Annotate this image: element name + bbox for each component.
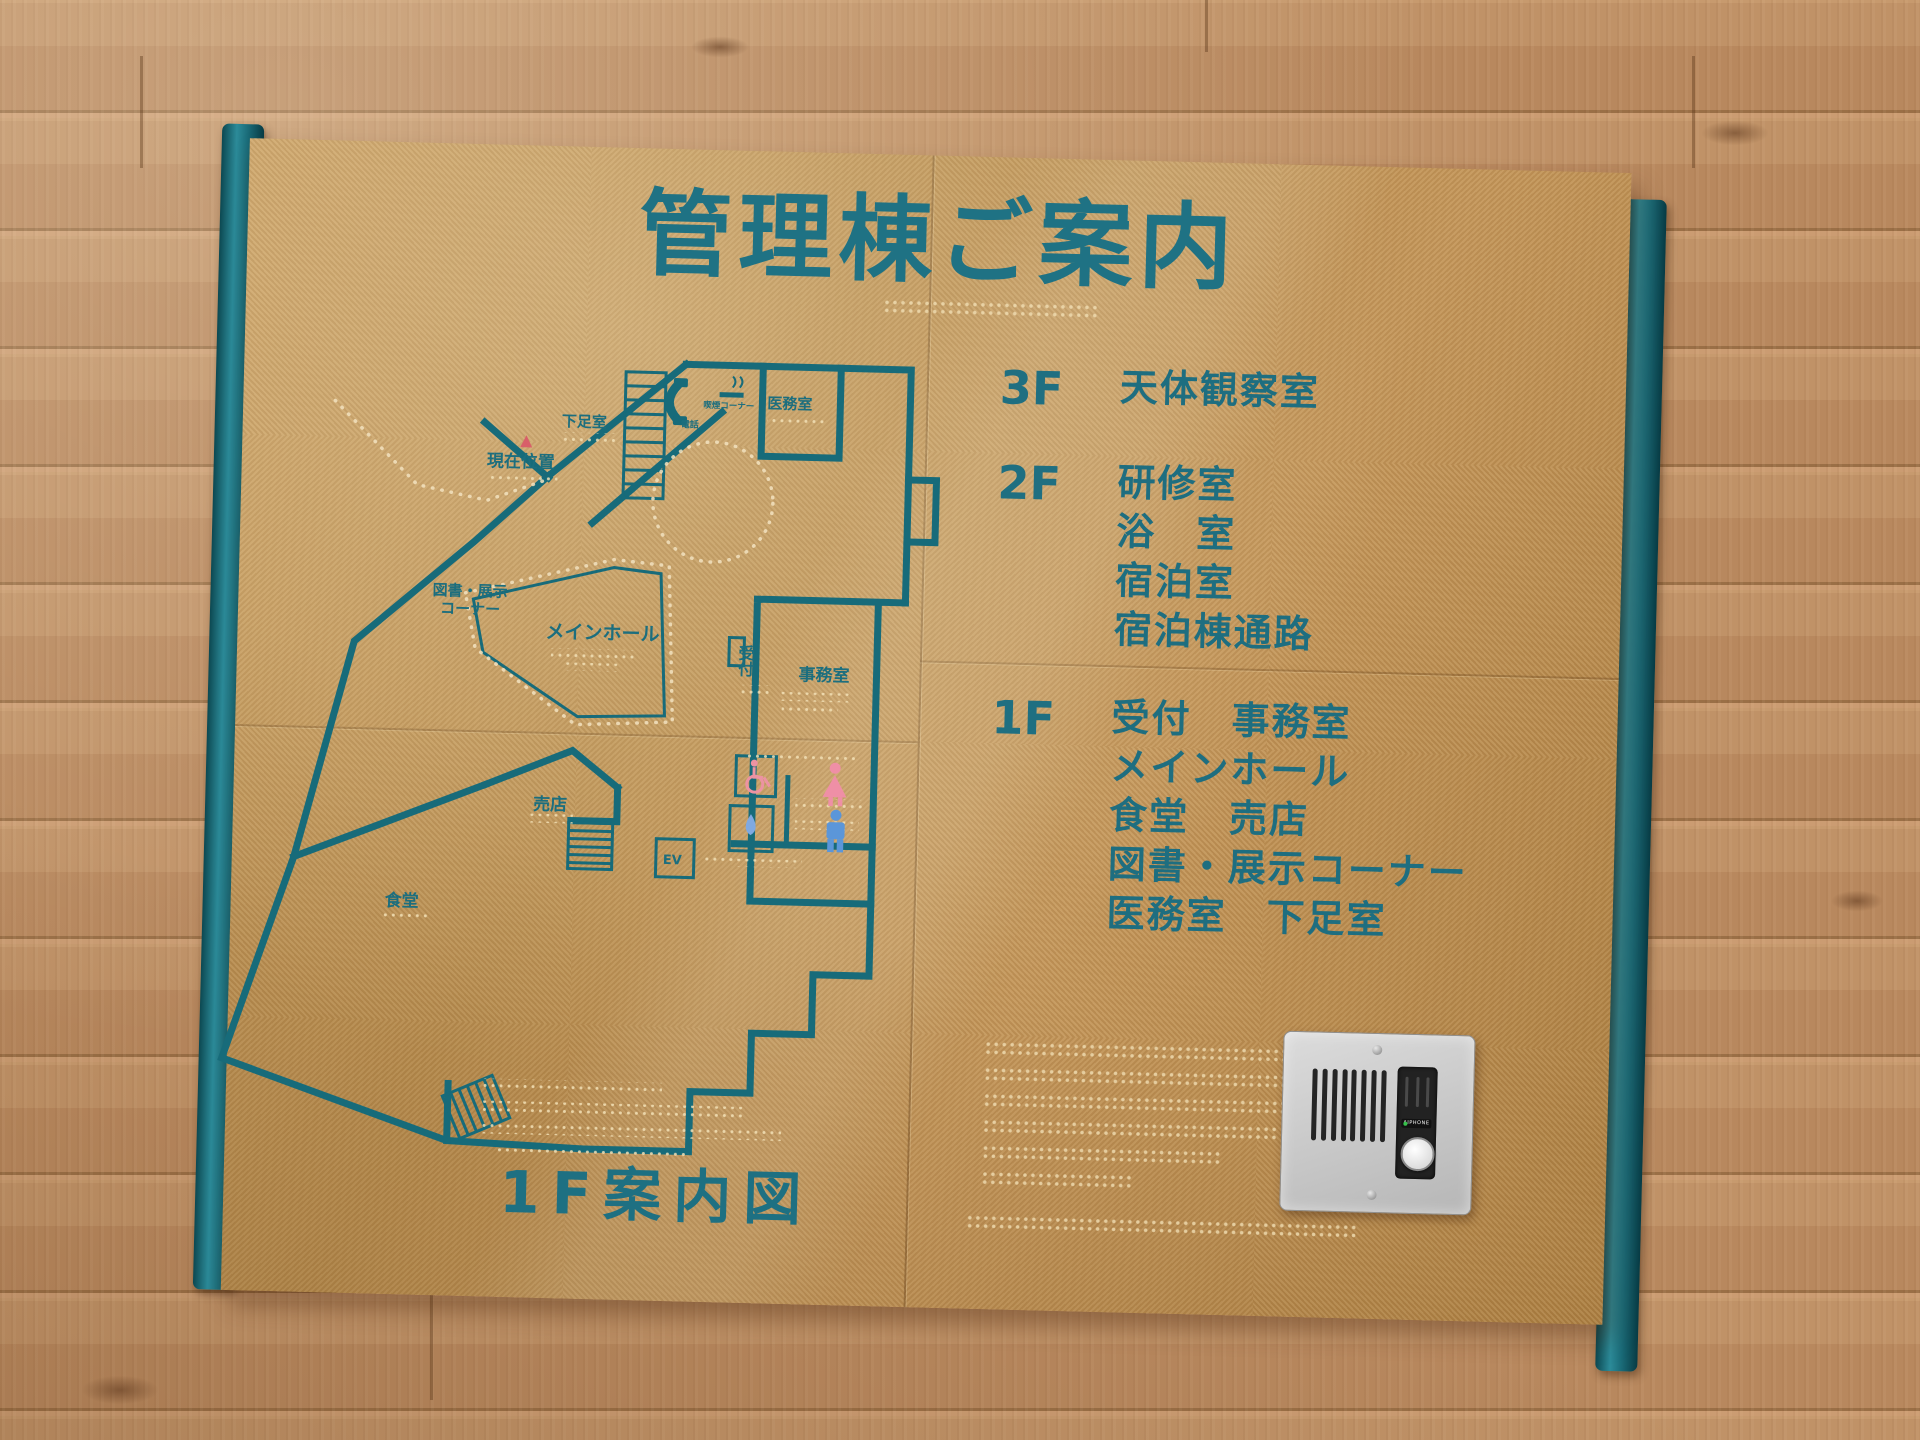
braille-paragraph [250, 138, 1632, 173]
label-phone: 電話 [681, 418, 699, 430]
intercom-call-button[interactable] [1400, 1137, 1435, 1172]
label-medical-room: 医務室 [767, 394, 812, 413]
floor-directory: 3F 天体観察室 2F 研修室 浴 室 宿泊室 宿泊棟通路 1F 受付 事務室 … [250, 138, 1632, 173]
stairs-shop [568, 822, 613, 869]
plan-caption: 1F案内図 [498, 1145, 814, 1237]
room-line: 天体観察室 [1119, 363, 1320, 417]
floor-label-2f: 2F [997, 455, 1062, 511]
braille-strips [374, 406, 875, 1165]
guide-sign: 管理棟ご案内 3F 天体観察室 2F 研修室 浴 室 宿泊室 宿泊棟通路 1F … [191, 116, 1692, 1393]
room-line: 宿泊棟通路 [1113, 605, 1314, 659]
label-office: 事務室 [798, 664, 850, 686]
wood-knot [1830, 890, 1884, 912]
braille-title [884, 299, 1098, 319]
floor-rooms-1f: 受付 事務室 メインホール 食堂 売店 図書・展示コーナー 医務室 下足室 [1106, 693, 1472, 947]
label-shoe-room: 下足室 [562, 412, 607, 431]
label-elevator: EV [663, 853, 682, 868]
wood-knot [1700, 120, 1770, 146]
dotted-guide-lines [327, 400, 775, 729]
room-line: 宿泊室 [1114, 556, 1315, 610]
smoking-icon [720, 376, 745, 398]
label-main-hall: メインホール [545, 621, 660, 646]
label-library-line2: コーナー [440, 599, 500, 619]
phone-icon [669, 378, 688, 425]
label-reception: 受付 [735, 644, 755, 678]
floor-label-3f: 3F [999, 360, 1064, 416]
label-library-line1: 図書・展示 [432, 581, 507, 601]
room-line: 医務室 下足室 [1106, 889, 1467, 947]
plank-joint [1205, 0, 1208, 52]
label-smoking-corner: 喫煙コーナー [703, 400, 754, 412]
intercom-module: AIPHONE [1395, 1067, 1438, 1180]
sign-title: 管理棟ご案内 [247, 178, 1631, 307]
sign-board: 管理棟ご案内 3F 天体観察室 2F 研修室 浴 室 宿泊室 宿泊棟通路 1F … [221, 138, 1632, 1325]
label-current-location: 現在位置 [487, 450, 556, 473]
screw-icon [1366, 1190, 1376, 1200]
wood-knot [690, 36, 750, 58]
room-line: 浴 室 [1116, 507, 1317, 561]
intercom-speaker-grille [1311, 1068, 1387, 1142]
plank-joint [140, 56, 143, 168]
intercom-brand-text: AIPHONE [1403, 1120, 1429, 1127]
current-location-marker [520, 435, 532, 447]
wood-knot [80, 1375, 160, 1405]
intercom-mic-vents [1405, 1077, 1430, 1108]
label-dining: 食堂 [384, 890, 419, 912]
panel-seam-horizontal-right [920, 660, 1619, 680]
label-shop: 売店 [533, 794, 568, 816]
plan-fixtures [441, 368, 798, 1147]
plank-joint [1692, 56, 1695, 168]
photo-of-building-guide-sign: { "sign": { "title": "管理棟ご案内", "caption"… [0, 0, 1920, 1440]
floor-label-1f: 1F [991, 690, 1056, 746]
screw-icon [1372, 1045, 1382, 1055]
intercom-panel: AIPHONE [1279, 1031, 1475, 1216]
floor-rooms-2f: 研修室 浴 室 宿泊室 宿泊棟通路 [1113, 458, 1318, 659]
intercom-brand-label: AIPHONE [1401, 1119, 1431, 1129]
room-line: 研修室 [1117, 458, 1318, 512]
led-indicator-icon [1403, 1121, 1407, 1125]
floor-rooms-3f: 天体観察室 [1119, 363, 1320, 417]
